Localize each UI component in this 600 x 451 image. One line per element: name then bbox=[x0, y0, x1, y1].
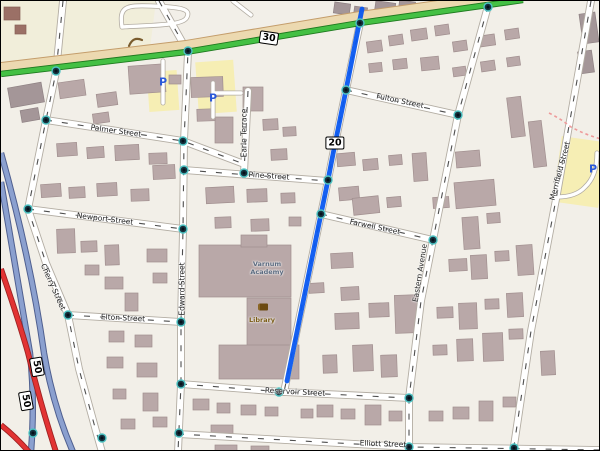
street-label-elliott-street: Elliott Street bbox=[360, 439, 407, 448]
street-label-edward-street: Edward Street bbox=[178, 262, 186, 315]
library-icon bbox=[258, 304, 268, 311]
route-shield-30: 30 bbox=[259, 30, 280, 46]
street-label-earle-terrace: Earle Terrace bbox=[240, 109, 248, 158]
parking-icon: P bbox=[209, 93, 217, 104]
route-shield-50: 50 bbox=[29, 356, 45, 377]
route-shield-50: 50 bbox=[18, 390, 34, 411]
street-label-reservoir-street: Reservoir Street bbox=[265, 387, 326, 398]
street-label-farwell-street: Farwell Street bbox=[349, 218, 401, 236]
street-label-eastern-avenue: Eastern Avenue bbox=[412, 243, 429, 302]
map-overlay: Palmer StreetNewport StreetCherry Street… bbox=[1, 1, 600, 451]
street-label-newport-street: Newport Street bbox=[76, 212, 133, 226]
street-label-elton-street: Elton Street bbox=[101, 313, 146, 323]
street-label-merrifield-street: Merrifield Street bbox=[549, 141, 572, 201]
street-label-palmer-street: Palmer Street bbox=[90, 124, 142, 139]
parking-icon: P bbox=[589, 164, 597, 175]
street-label-pine-street: Pine Street bbox=[248, 171, 289, 181]
library-label: Library bbox=[249, 317, 275, 325]
street-label-fulton-street: Fulton Street bbox=[376, 92, 425, 109]
map-canvas[interactable]: Palmer StreetNewport StreetCherry Street… bbox=[0, 0, 600, 451]
route-shield-20: 20 bbox=[325, 137, 344, 150]
academy-label: Varnum Academy bbox=[250, 261, 283, 277]
street-label-cherry-street: Cherry Street bbox=[39, 263, 66, 312]
parking-icon: P bbox=[159, 77, 167, 88]
